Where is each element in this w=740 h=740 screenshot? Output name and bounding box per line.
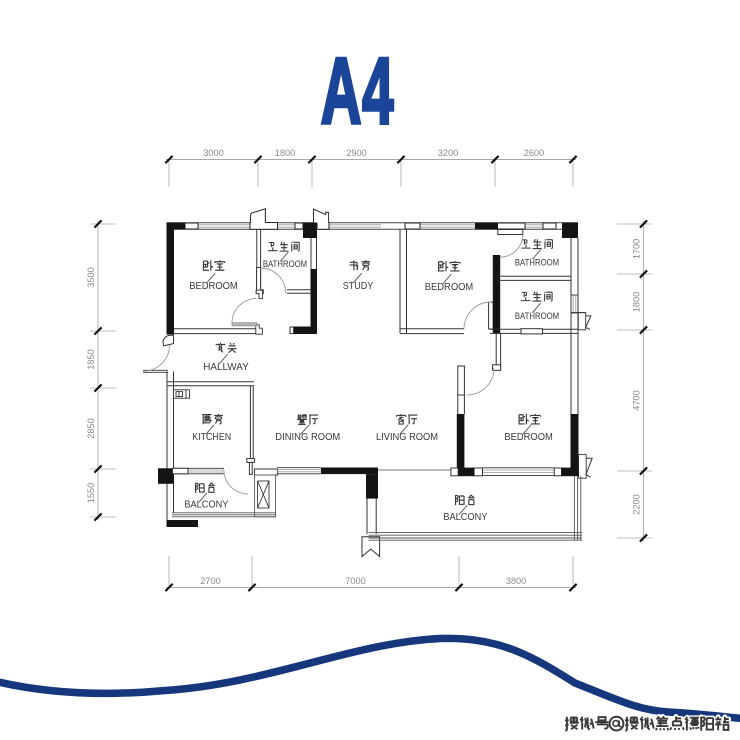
- svg-text:KITCHEN: KITCHEN: [192, 431, 231, 443]
- svg-text:BEDROOM: BEDROOM: [504, 431, 553, 443]
- svg-text:2700: 2700: [200, 576, 220, 586]
- svg-text:A4: A4: [321, 39, 394, 143]
- svg-text:1800: 1800: [632, 292, 642, 312]
- svg-text:2200: 2200: [632, 494, 642, 514]
- svg-text:1550: 1550: [86, 483, 96, 503]
- svg-text:1700: 1700: [632, 239, 642, 259]
- svg-text:3000: 3000: [203, 148, 223, 158]
- svg-text:BEDROOM: BEDROOM: [425, 281, 474, 293]
- svg-text:BATHROOM: BATHROOM: [515, 258, 559, 268]
- svg-text:2900: 2900: [346, 148, 366, 158]
- svg-text:7000: 7000: [345, 576, 365, 586]
- svg-text:4700: 4700: [632, 390, 642, 410]
- svg-text:BATHROOM: BATHROOM: [263, 259, 307, 269]
- svg-text:BALCONY: BALCONY: [184, 499, 228, 511]
- svg-text:STUDY: STUDY: [343, 280, 374, 292]
- svg-text:3800: 3800: [506, 576, 526, 586]
- svg-text:HALLWAY: HALLWAY: [203, 361, 249, 373]
- svg-text:BATHROOM: BATHROOM: [515, 311, 559, 321]
- svg-text:LIVING ROOM: LIVING ROOM: [376, 431, 438, 443]
- svg-text:3500: 3500: [86, 267, 96, 287]
- svg-text:2600: 2600: [524, 148, 544, 158]
- svg-text:DINING ROOM: DINING ROOM: [275, 431, 340, 443]
- svg-text:BALCONY: BALCONY: [443, 511, 487, 523]
- svg-text:2850: 2850: [86, 418, 96, 438]
- svg-text:BEDROOM: BEDROOM: [189, 280, 238, 292]
- svg-text:1850: 1850: [86, 349, 96, 369]
- svg-text:1800: 1800: [275, 148, 295, 158]
- svg-text:3200: 3200: [438, 148, 458, 158]
